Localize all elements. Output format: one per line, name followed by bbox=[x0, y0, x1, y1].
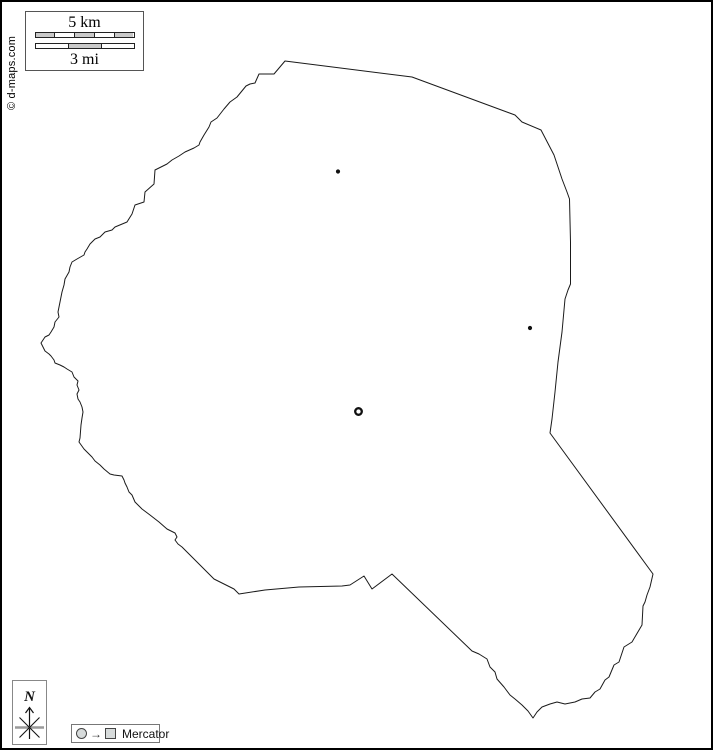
scale-segment bbox=[114, 33, 134, 37]
copyright-text: © d-maps.com bbox=[6, 36, 18, 110]
arrow-right-icon: → bbox=[90, 728, 102, 740]
territory-outline bbox=[41, 61, 653, 718]
scale-segment bbox=[54, 33, 74, 37]
north-label: N bbox=[23, 689, 36, 705]
projection-legend: → Mercator bbox=[71, 724, 160, 743]
map-image: © d-maps.com 5 km 3 mi N → Mercator bbox=[0, 0, 713, 750]
scale-segment bbox=[74, 33, 94, 37]
scale-box: 5 km 3 mi bbox=[25, 11, 144, 71]
city-dot-marker bbox=[528, 326, 532, 330]
scale-segment bbox=[94, 33, 114, 37]
globe-circle-icon bbox=[76, 728, 87, 739]
scale-mi-bar bbox=[35, 43, 135, 49]
city-dot-marker bbox=[336, 169, 340, 173]
map-outline-layer bbox=[2, 2, 713, 750]
scale-km-label: 5 km bbox=[26, 14, 143, 31]
scale-segment bbox=[101, 44, 134, 48]
scale-mi-label: 3 mi bbox=[26, 51, 143, 68]
projection-label: Mercator bbox=[122, 727, 169, 741]
scale-segment bbox=[68, 44, 101, 48]
compass-rose: N bbox=[13, 681, 46, 744]
scale-segment bbox=[36, 44, 68, 48]
compass-box: N bbox=[12, 680, 47, 745]
scale-segment bbox=[36, 33, 55, 37]
scale-km-bar bbox=[35, 32, 135, 38]
town-ring-marker bbox=[355, 408, 362, 415]
projected-square-icon bbox=[105, 728, 116, 739]
